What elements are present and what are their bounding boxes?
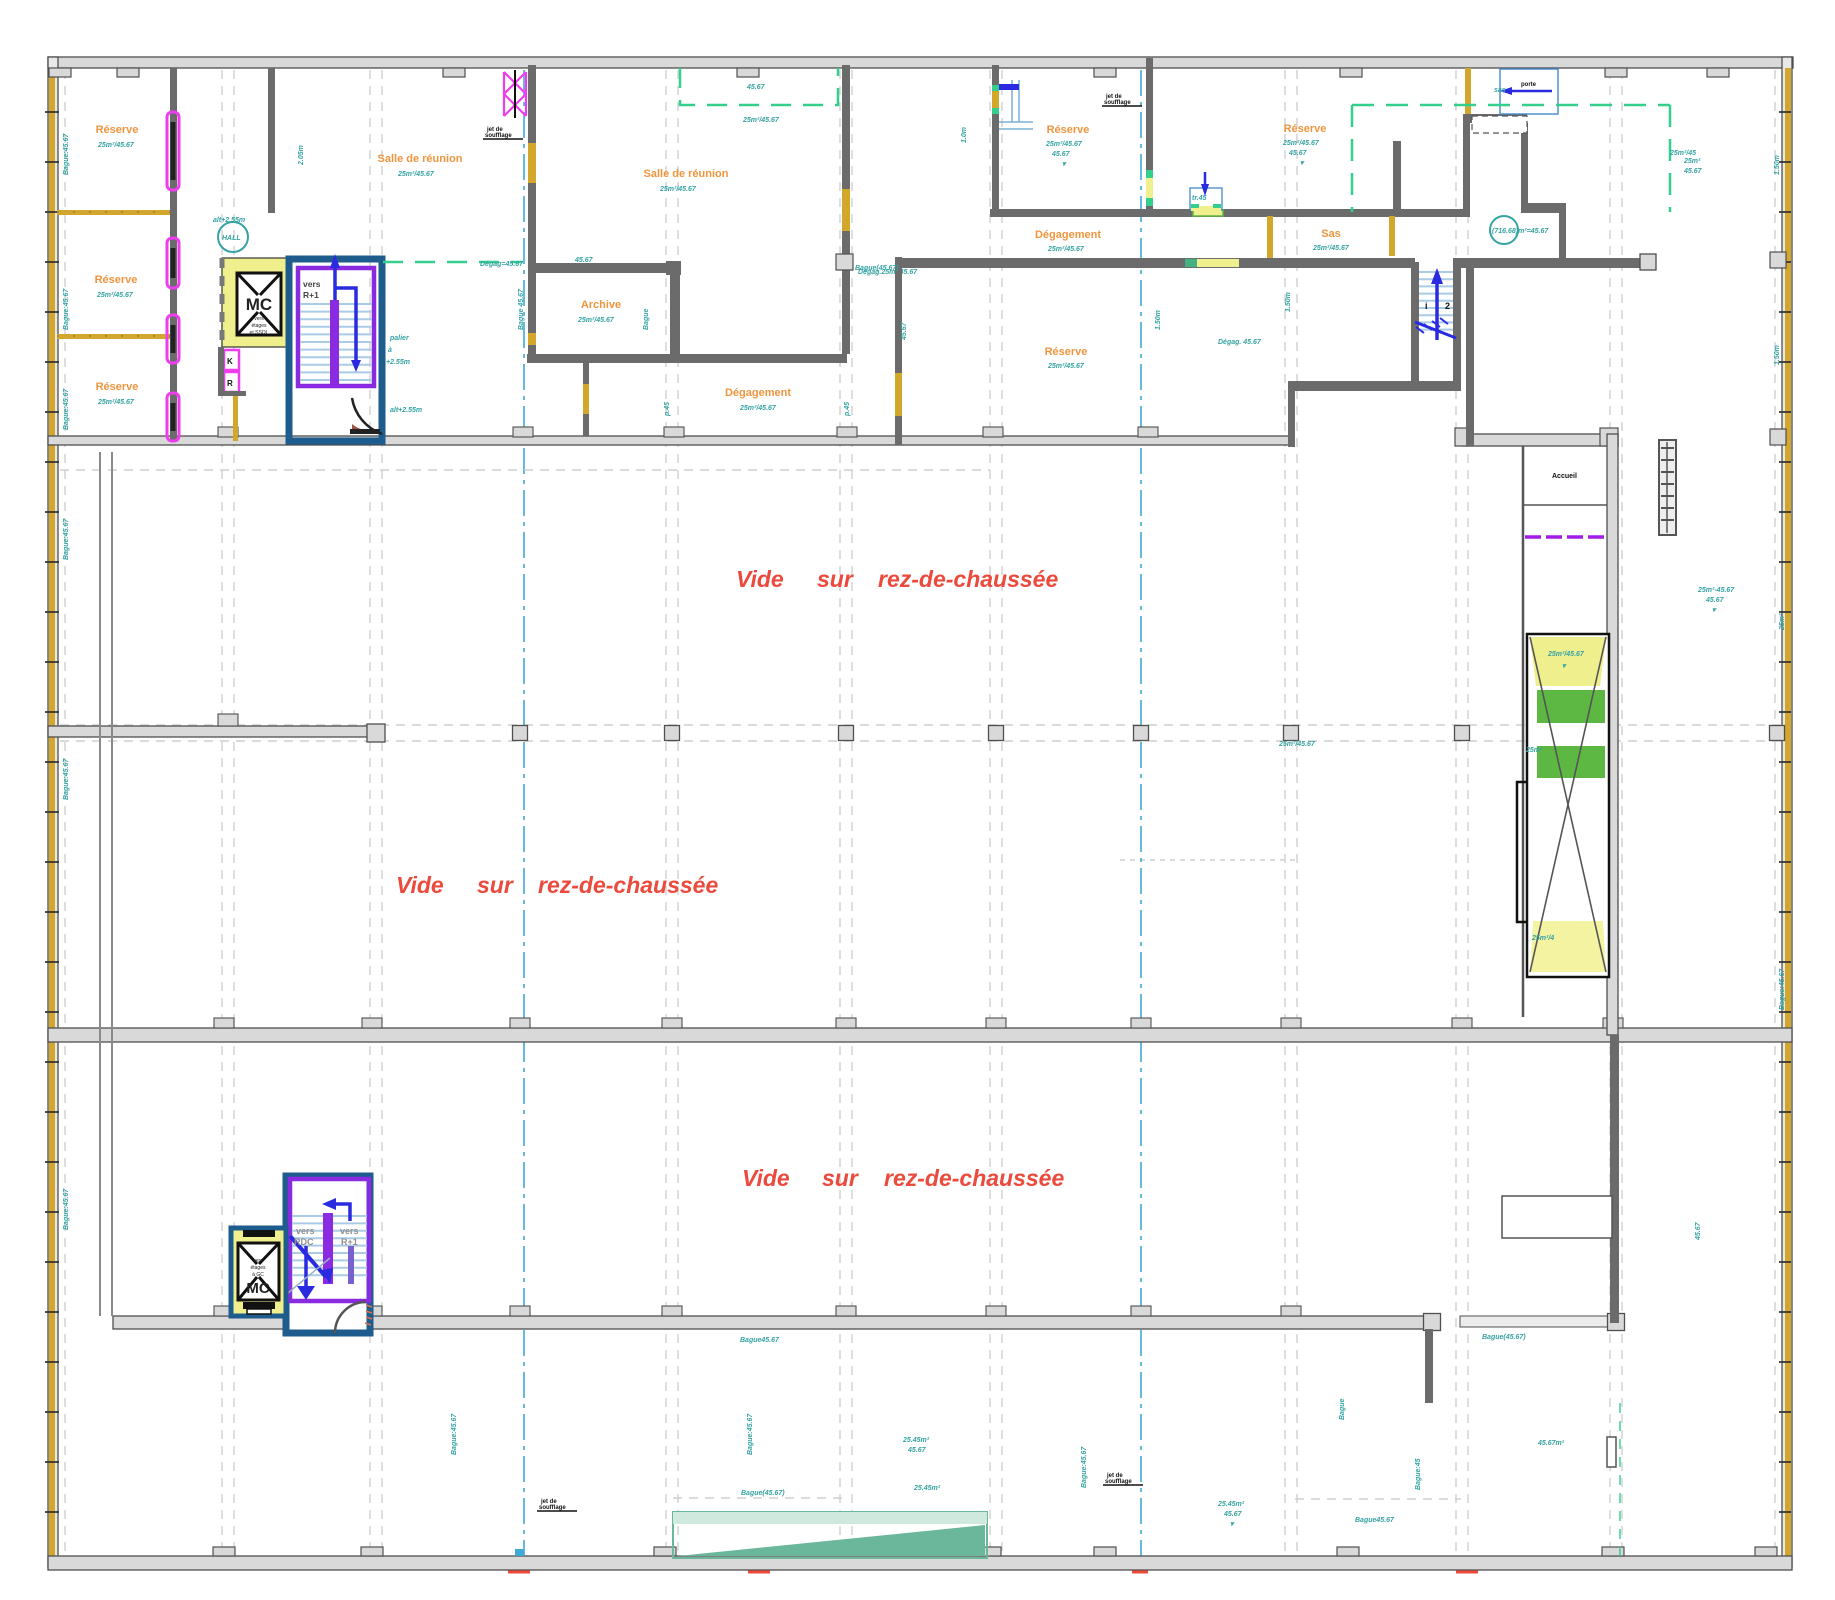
svg-text:2: 2 bbox=[1445, 301, 1450, 311]
svg-text:Réserve: Réserve bbox=[95, 274, 138, 286]
svg-text:25m²/45: 25m²/45 bbox=[1669, 150, 1696, 157]
svg-text:45.67: 45.67 bbox=[1705, 597, 1725, 604]
svg-text:45.67: 45.67 bbox=[1695, 1221, 1702, 1241]
svg-text:25m²/45.67: 25m²/45.67 bbox=[1047, 246, 1085, 253]
svg-text:sur: sur bbox=[477, 872, 514, 898]
svg-text:à: à bbox=[388, 347, 392, 354]
svg-text:25m²: 25m² bbox=[1525, 747, 1543, 754]
svg-text:25m²/45.67: 25m²/45.67 bbox=[1278, 741, 1316, 748]
svg-text:25m²: 25m² bbox=[1779, 613, 1786, 631]
svg-text:25m²/45.67: 25m²/45.67 bbox=[97, 142, 135, 149]
svg-text:MC: MC bbox=[246, 295, 272, 314]
svg-text:45.67m²: 45.67m² bbox=[1537, 1440, 1565, 1447]
svg-text:1.0m: 1.0m bbox=[961, 127, 968, 143]
svg-text:25m²/45.67: 25m²/45.67 bbox=[739, 405, 777, 412]
svg-text:porte: porte bbox=[1521, 82, 1537, 88]
svg-text:1.50m: 1.50m bbox=[1285, 292, 1292, 312]
svg-text:25.45m²: 25.45m² bbox=[1217, 1501, 1245, 1508]
svg-text:et SSOL: et SSOL bbox=[250, 330, 269, 336]
svg-text:2.05m: 2.05m bbox=[298, 145, 305, 166]
svg-text:Réserve: Réserve bbox=[1047, 124, 1090, 136]
svg-text:palier: palier bbox=[389, 335, 410, 342]
svg-text:rez-de-chaussée: rez-de-chaussée bbox=[884, 1165, 1064, 1191]
svg-text:soufflage: soufflage bbox=[1104, 100, 1131, 106]
svg-text:25m²/45.67: 25m²/45.67 bbox=[96, 292, 134, 299]
svg-text:MC: MC bbox=[246, 1280, 269, 1297]
svg-text:Sas: Sas bbox=[1321, 228, 1341, 240]
svg-text:Bague:45.67: Bague:45.67 bbox=[451, 1413, 458, 1455]
svg-text:45.67: 45.67 bbox=[746, 84, 766, 91]
svg-text:Bague(45.67): Bague(45.67) bbox=[855, 265, 899, 272]
svg-text:Dégagement: Dégagement bbox=[1035, 229, 1101, 241]
svg-text:étages: étages bbox=[251, 323, 267, 329]
svg-text:45.67: 45.67 bbox=[1223, 1511, 1243, 1518]
svg-text:Bague(45.67): Bague(45.67) bbox=[1482, 1334, 1526, 1341]
svg-text:25m²/45.67: 25m²/45.67 bbox=[1312, 245, 1350, 252]
svg-text:Salle de réunion: Salle de réunion bbox=[644, 168, 729, 180]
svg-text:25m²/45.67: 25m²/45.67 bbox=[97, 399, 135, 406]
svg-text:25m²: 25m² bbox=[1683, 158, 1701, 165]
svg-text:R+1: R+1 bbox=[303, 290, 319, 300]
svg-text:Réserve: Réserve bbox=[1284, 123, 1327, 135]
svg-text:Bague(45.67): Bague(45.67) bbox=[741, 1490, 785, 1497]
svg-text:Bague45.67: Bague45.67 bbox=[1355, 1517, 1395, 1524]
svg-text:25m²/45.67: 25m²/45.67 bbox=[1047, 363, 1085, 370]
svg-text:Bague:45.67: Bague:45.67 bbox=[63, 133, 70, 175]
svg-text:RDC: RDC bbox=[294, 1237, 314, 1247]
svg-text:25.45m²: 25.45m² bbox=[913, 1485, 941, 1492]
svg-text:étages: étages bbox=[250, 1265, 266, 1271]
svg-text:Salle de réunion: Salle de réunion bbox=[378, 153, 463, 165]
svg-text:rez-de-chaussée: rez-de-chaussée bbox=[878, 566, 1058, 592]
svg-text:45.67: 45.67 bbox=[574, 257, 594, 264]
svg-text:vers: vers bbox=[253, 1258, 263, 1264]
svg-text:Vide: Vide bbox=[396, 872, 444, 898]
svg-text:Bague:45.67: Bague:45.67 bbox=[63, 518, 70, 560]
svg-text:Dégagement: Dégagement bbox=[725, 387, 791, 399]
svg-text:(716.68)m²=45.67: (716.68)m²=45.67 bbox=[1492, 228, 1549, 235]
svg-text:Dégag=45.67: Dégag=45.67 bbox=[480, 261, 524, 268]
svg-text:p.45: p.45 bbox=[844, 402, 851, 417]
svg-text:Bague:45.67: Bague:45.67 bbox=[747, 1413, 754, 1455]
svg-text:Bague:45.67: Bague:45.67 bbox=[63, 388, 70, 430]
svg-text:rez-de-chaussée: rez-de-chaussée bbox=[538, 872, 718, 898]
svg-text:1.50m: 1.50m bbox=[1155, 310, 1162, 330]
svg-text:25m²/45.67: 25m²/45.67 bbox=[1282, 140, 1320, 147]
svg-text:Bague45.67: Bague45.67 bbox=[740, 1337, 780, 1344]
svg-text:+2.55m: +2.55m bbox=[386, 359, 410, 366]
svg-text:K: K bbox=[227, 357, 233, 366]
svg-text:Accueil: Accueil bbox=[1552, 473, 1577, 480]
svg-text:25m²/4: 25m²/4 bbox=[1531, 935, 1554, 942]
svg-text:Bague:45: Bague:45 bbox=[1415, 1458, 1422, 1490]
svg-text:Bague 45.67: Bague 45.67 bbox=[518, 288, 525, 330]
svg-text:p.45: p.45 bbox=[664, 402, 671, 417]
svg-text:1.50m: 1.50m bbox=[1774, 155, 1781, 175]
svg-text:25m²/45.67: 25m²/45.67 bbox=[742, 117, 780, 124]
svg-text:tr.45: tr.45 bbox=[1192, 195, 1207, 202]
svg-text:25m²-45.67: 25m²-45.67 bbox=[1697, 587, 1735, 594]
svg-text:soufflage: soufflage bbox=[1105, 1479, 1132, 1485]
svg-text:45.67: 45.67 bbox=[1051, 151, 1071, 158]
svg-text:HALL: HALL bbox=[222, 235, 241, 242]
svg-text:Réserve: Réserve bbox=[96, 381, 139, 393]
svg-text:alt+2.55m: alt+2.55m bbox=[213, 217, 245, 224]
svg-text:25m²/45.67: 25m²/45.67 bbox=[1045, 141, 1083, 148]
svg-text:Bague:45.67: Bague:45.67 bbox=[63, 758, 70, 800]
svg-text:alt+2.55m: alt+2.55m bbox=[390, 407, 422, 414]
svg-text:R: R bbox=[227, 379, 233, 388]
svg-text:25m²/45.67: 25m²/45.67 bbox=[577, 317, 615, 324]
svg-text:vers: vers bbox=[254, 316, 264, 322]
svg-text:i: i bbox=[1425, 301, 1428, 311]
svg-text:Bague: Bague bbox=[643, 309, 650, 331]
svg-text:25m²/45.67: 25m²/45.67 bbox=[1547, 651, 1585, 658]
svg-text:25m²/45.67: 25m²/45.67 bbox=[659, 186, 697, 193]
svg-text:25m²/45.67: 25m²/45.67 bbox=[397, 171, 435, 178]
svg-text:45.67: 45.67 bbox=[1683, 168, 1703, 175]
svg-text:Bague:45.67: Bague:45.67 bbox=[63, 288, 70, 330]
svg-text:45.67: 45.67 bbox=[1288, 150, 1308, 157]
svg-text:Vide: Vide bbox=[742, 1165, 790, 1191]
svg-text:Archive: Archive bbox=[581, 299, 621, 311]
svg-text:sur: sur bbox=[817, 566, 854, 592]
svg-text:soufflage: soufflage bbox=[485, 133, 512, 139]
svg-text:sas: sas bbox=[1494, 87, 1506, 94]
svg-text:Bague:45.67: Bague:45.67 bbox=[1779, 968, 1786, 1010]
svg-text:25.45m²: 25.45m² bbox=[902, 1437, 930, 1444]
svg-text:1.50m: 1.50m bbox=[1774, 345, 1781, 365]
svg-text:Bague:45.67: Bague:45.67 bbox=[1081, 1446, 1088, 1488]
svg-text:soufflage: soufflage bbox=[539, 1505, 566, 1511]
svg-text:sur: sur bbox=[822, 1165, 859, 1191]
svg-text:Réserve: Réserve bbox=[1045, 346, 1088, 358]
svg-text:45.67: 45.67 bbox=[907, 1447, 927, 1454]
svg-text:Bague: Bague bbox=[1339, 1399, 1346, 1421]
svg-text:R+1: R+1 bbox=[341, 1237, 358, 1247]
svg-text:Bague:45.67: Bague:45.67 bbox=[63, 1188, 70, 1230]
svg-text:vers: vers bbox=[303, 279, 321, 289]
svg-text:Vide: Vide bbox=[736, 566, 784, 592]
svg-text:Réserve: Réserve bbox=[96, 124, 139, 136]
svg-text:à GC: à GC bbox=[252, 1272, 264, 1278]
svg-text:vers: vers bbox=[296, 1226, 315, 1236]
svg-text:vers: vers bbox=[340, 1226, 359, 1236]
svg-text:45.67: 45.67 bbox=[901, 321, 908, 341]
svg-text:Dégag. 45.67: Dégag. 45.67 bbox=[1218, 339, 1262, 346]
